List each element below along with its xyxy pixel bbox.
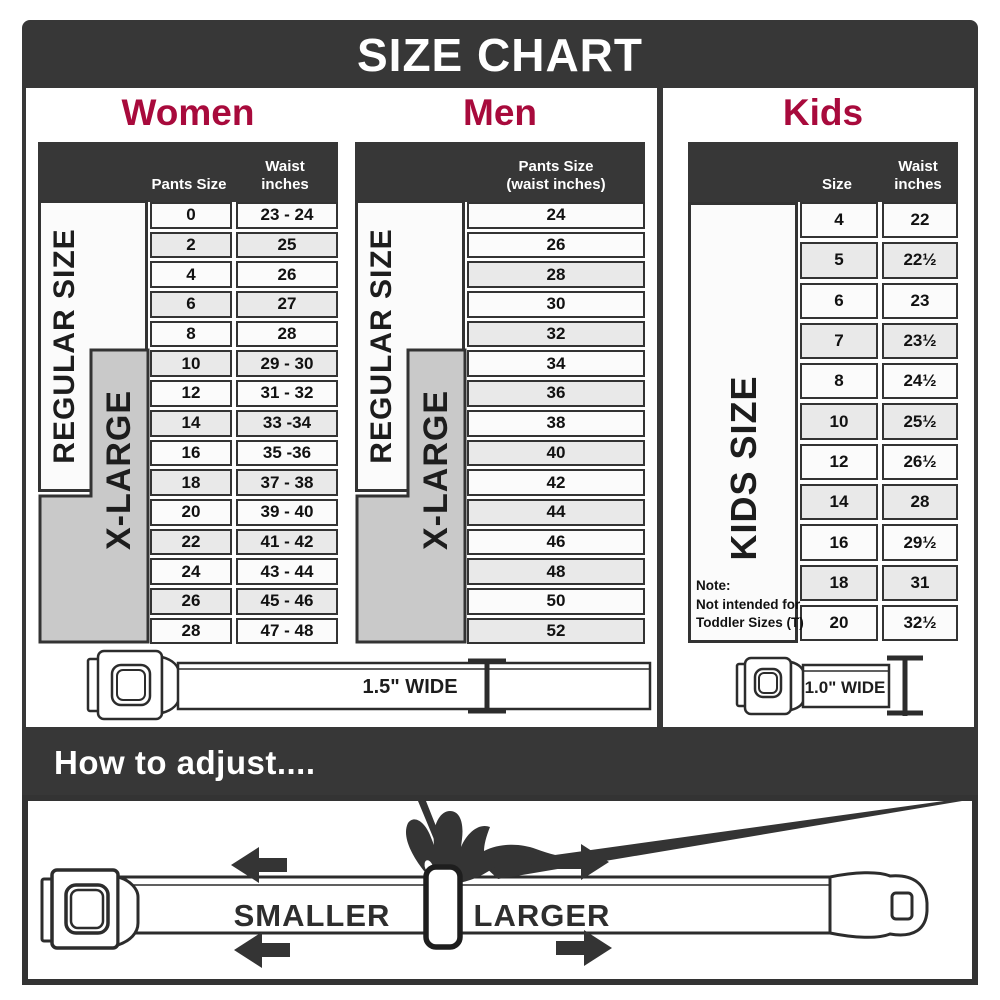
size-cell: 20 [800,605,878,641]
section-divider [657,88,663,731]
men-regular-size-label: REGULAR SIZE [362,196,402,496]
kids-col-size: Size [796,176,878,202]
men-size-range-labels: REGULAR SIZE X-LARGE [355,200,467,647]
pants-size-cell: 48 [467,558,645,585]
pants-size-cell: 18 [150,469,232,496]
kids-heading: Kids [688,92,958,140]
pants-size-cell: 8 [150,321,232,348]
waist-cell: 37 - 38 [236,469,338,496]
pants-size-cell: 12 [150,380,232,407]
kids-size-box: KIDS SIZE Note: Not intended for Toddler… [688,202,798,643]
larger-label: LARGER [474,898,611,933]
adjust-illustration: SMALLER LARGER [28,801,972,979]
waist-cell: 26½ [882,444,958,480]
women-size-range-labels: REGULAR SIZE X-LARGE [38,200,150,647]
women-col-waist: Waist inches [232,158,338,203]
pants-size-cell: 40 [467,440,645,467]
waist-cell: 47 - 48 [236,618,338,645]
waist-cell: 41 - 42 [236,529,338,556]
kids-belt-width-label: 1.0" WIDE [805,678,886,697]
seatbelt-buckle-icon [737,658,804,714]
waist-cell: 22½ [882,242,958,278]
waist-cell: 27 [236,291,338,318]
waist-cell: 24½ [882,363,958,399]
men-xlarge-label: X-LARGE [416,320,456,620]
pants-size-cell: 6 [150,291,232,318]
kids-size-label: KIDS SIZE [724,318,764,618]
waist-cell: 26 [236,261,338,288]
pants-size-cell: 26 [150,588,232,615]
seatbelt-buckle-icon [42,870,138,948]
size-cell: 8 [800,363,878,399]
pants-size-cell: 44 [467,499,645,526]
women-xlarge-label: X-LARGE [99,320,139,620]
pants-size-cell: 26 [467,232,645,259]
belt-latch-plate-icon [830,873,927,938]
waist-cell: 29 - 30 [236,350,338,377]
size-cell: 18 [800,565,878,601]
kids-col-waist: Waist inches [878,158,958,203]
waist-cell: 43 - 44 [236,558,338,585]
size-cell: 6 [800,283,878,319]
arrow-right-icon [556,930,612,966]
how-to-adjust-bar: How to adjust.... [22,731,978,795]
men-table-header: Pants Size (waist inches) [355,142,645,202]
waist-cell: 23 [882,283,958,319]
pants-size-cell: 50 [467,588,645,615]
pants-size-cell: 38 [467,410,645,437]
women-table-header: Pants Size Waist inches [38,142,338,202]
waist-cell: 25½ [882,403,958,439]
pants-size-cell: 14 [150,410,232,437]
pants-size-cell: 32 [467,321,645,348]
waist-cell: 29½ [882,524,958,560]
belt-adjuster-icon [426,867,460,947]
seatbelt-buckle-icon [88,651,179,719]
pants-size-cell: 10 [150,350,232,377]
waist-cell: 32½ [882,605,958,641]
size-cell: 14 [800,484,878,520]
page-title: SIZE CHART [22,20,978,90]
waist-cell: 39 - 40 [236,499,338,526]
kids-belt-illustration: 1.0" WIDE [715,652,945,722]
pants-size-cell: 20 [150,499,232,526]
pants-size-cell: 34 [467,350,645,377]
belt-tail [418,801,962,879]
pants-size-cell: 28 [150,618,232,645]
pants-size-cell: 28 [467,261,645,288]
waist-cell: 25 [236,232,338,259]
size-chart-page: SIZE CHART Women Men Kids Pants Size Wai… [0,0,1000,1000]
pants-size-cell: 36 [467,380,645,407]
belt-strap [114,877,830,933]
size-cell: 16 [800,524,878,560]
width-marker-icon [887,658,923,716]
waist-cell: 22 [882,202,958,238]
kids-table-header: Size Waist inches [688,142,958,202]
smaller-label: SMALLER [234,898,391,933]
waist-cell: 45 - 46 [236,588,338,615]
pants-size-cell: 4 [150,261,232,288]
pants-size-cell: 24 [150,558,232,585]
size-cell: 10 [800,403,878,439]
pants-size-cell: 16 [150,440,232,467]
waist-cell: 28 [882,484,958,520]
pants-size-cell: 42 [467,469,645,496]
waist-cell: 23½ [882,323,958,359]
title-bar: SIZE CHART [22,20,978,88]
pants-size-cell: 52 [467,618,645,645]
waist-cell: 28 [236,321,338,348]
men-heading: Men [355,92,645,140]
waist-cell: 35 -36 [236,440,338,467]
women-col-pants-size: Pants Size [146,176,232,202]
arrow-left-icon [234,932,290,968]
pants-size-cell: 24 [467,202,645,229]
pants-size-cell: 2 [150,232,232,259]
kids-note: Note: Not intended for Toddler Sizes (T) [696,577,804,632]
pants-size-cell: 46 [467,529,645,556]
how-to-adjust-heading: How to adjust.... [22,731,978,795]
size-cell: 7 [800,323,878,359]
women-heading: Women [38,92,338,140]
size-cell: 12 [800,444,878,480]
adjust-illustration-area: SMALLER LARGER [22,795,978,985]
pants-size-cell: 30 [467,291,645,318]
size-cell: 5 [800,242,878,278]
adult-belt-illustration: 1.5" WIDE [38,645,658,733]
men-col-pants-size: Pants Size (waist inches) [467,158,645,203]
waist-cell: 31 - 32 [236,380,338,407]
waist-cell: 23 - 24 [236,202,338,229]
adult-belt-width-label: 1.5" WIDE [362,676,457,698]
size-cell: 4 [800,202,878,238]
waist-cell: 31 [882,565,958,601]
waist-cell: 33 -34 [236,410,338,437]
pants-size-cell: 22 [150,529,232,556]
women-regular-size-label: REGULAR SIZE [45,196,85,496]
pants-size-cell: 0 [150,202,232,229]
